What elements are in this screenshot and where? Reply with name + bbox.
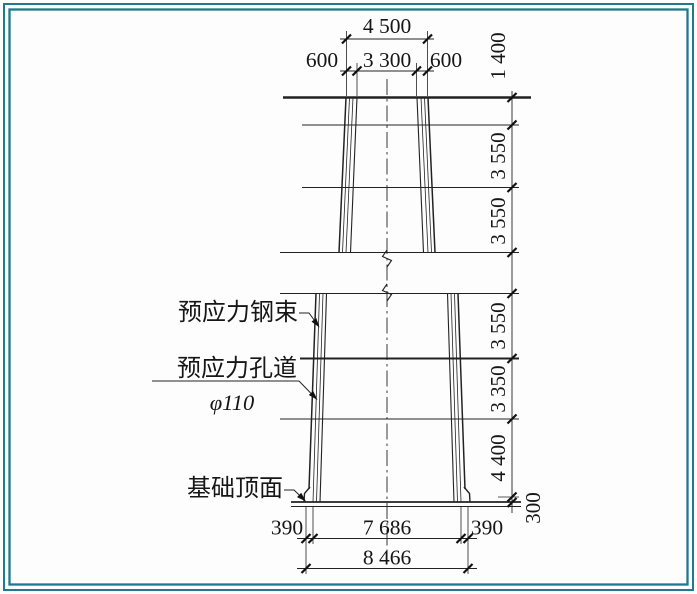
dim-cap-total-width: 4 500 [363,14,411,38]
dim-left-overhang: 600 [306,48,338,72]
base-flare [464,487,470,502]
pier-wall-line [417,98,424,253]
dim-inner-width-top: 3 300 [363,48,411,72]
tendon-duct-line [425,98,432,253]
centerline-group [383,79,392,560]
tendon-duct-line [343,98,350,253]
tendon-duct-line [451,294,458,503]
callouts: 预应力钢束 预应力孔道 φ110 基础顶面 [152,299,320,502]
pier-wall-line [351,98,358,253]
dim-seg-4400: 4 400 [486,434,510,481]
pier-wall-line [448,294,455,503]
dim-base-right-offset: 390 [471,516,503,540]
dim-seg-3550-c: 3 550 [486,302,510,349]
pier-wall-line [339,98,346,253]
dim-seg-3550-a: 3 550 [486,132,510,179]
drawing-sheet: 4 500 600 3 300 600 1 400 3 550 3 550 3 … [0,0,697,594]
pier-wall-line [320,294,327,503]
label-prestressed-duct: 预应力孔道 [177,355,297,382]
pier-wall-line [458,294,465,490]
dim-base-total-width: 8 466 [363,546,412,570]
label-foundation-top: 基础顶面 [187,475,283,502]
pier-wall-line [428,98,435,253]
pier-elevation-drawing: 4 500 600 3 300 600 1 400 3 550 3 550 3 … [0,0,697,594]
right-dimension-chain: 1 400 3 550 3 550 3 550 3 350 4 400 300 [486,32,545,523]
dim-seg-300: 300 [521,492,545,524]
dim-seg-3350: 3 350 [486,365,510,412]
label-prestressed-tendon: 预应力钢束 [178,299,298,326]
dim-base-inner-width: 7 686 [363,516,412,540]
dim-right-overhang: 600 [430,48,462,72]
top-dimensions: 4 500 600 3 300 600 [306,14,462,96]
tendon-duct-line [455,294,462,503]
dim-seg-1400: 1 400 [486,32,510,79]
dim-seg-3550-b: 3 550 [486,197,510,244]
inner-frame [10,10,688,585]
dim-base-left-offset: 390 [271,516,303,540]
label-duct-diameter: φ110 [210,390,255,415]
